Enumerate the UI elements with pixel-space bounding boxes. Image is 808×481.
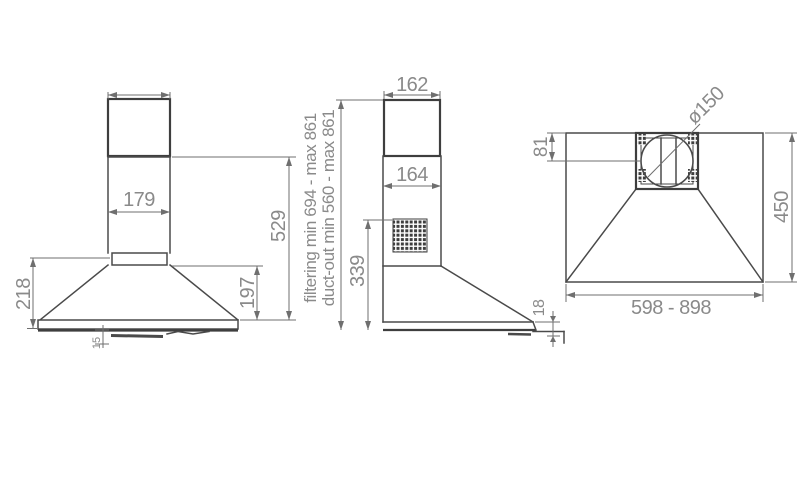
front-view: 179 218 197 529 15 [13, 92, 296, 349]
dim-lip-label: 15 [91, 337, 103, 349]
side-rim-tip [533, 322, 536, 330]
front-lamp-strip [167, 332, 209, 335]
dim-width-range-label: 598 - 898 [631, 297, 711, 319]
arrow-icon [550, 336, 556, 342]
side-vent-grille [393, 219, 427, 252]
dim-overall-height-label: 529 [268, 210, 290, 242]
side-cone-slope [441, 266, 533, 322]
front-cone-right-slope [170, 265, 238, 320]
top-view-outline [566, 133, 763, 282]
dim-bottom-depth-label: 164 [396, 164, 428, 186]
arrow-icon [550, 316, 556, 322]
dim-duct-offset-label: 81 [531, 137, 552, 157]
dim-hood-height-label: 218 [13, 278, 35, 310]
top-duct-corner-hatch [637, 134, 646, 145]
side-view: 162 164 339 filtering min 694 - max 861 … [301, 74, 564, 347]
dim-base-edge-label: 18 [531, 299, 548, 316]
dim-duct-out-range-label: duct-out min 560 - max 861 [319, 110, 338, 307]
dim-duct-diameter-label: ø150 [683, 82, 730, 129]
dim-cone-height-label: 197 [237, 277, 259, 309]
top-view: ø150 81 450 598 - 898 [531, 82, 797, 319]
hood-dimension-drawing: 179 218 197 529 15 [0, 0, 808, 481]
dim-body-height-label: 339 [347, 255, 369, 287]
front-view-outline [38, 99, 238, 337]
front-cone-left-slope [40, 265, 108, 320]
front-base-rim [38, 320, 238, 329]
dim-top-depth-label: 162 [396, 74, 428, 96]
technical-drawing-canvas: 179 218 197 529 15 [0, 0, 808, 481]
front-filter-strip [111, 336, 163, 337]
dim-depth-label: 450 [771, 191, 793, 223]
side-chimney-upper [384, 100, 440, 156]
side-filter-edge [508, 334, 531, 335]
front-chimney-upper [108, 99, 170, 156]
dim-filtering-range-label: filtering min 694 - max 861 [301, 113, 320, 303]
front-collar [112, 253, 167, 265]
dim-chimney-width-label: 179 [123, 189, 155, 211]
top-duct-corner-hatch [688, 134, 697, 145]
